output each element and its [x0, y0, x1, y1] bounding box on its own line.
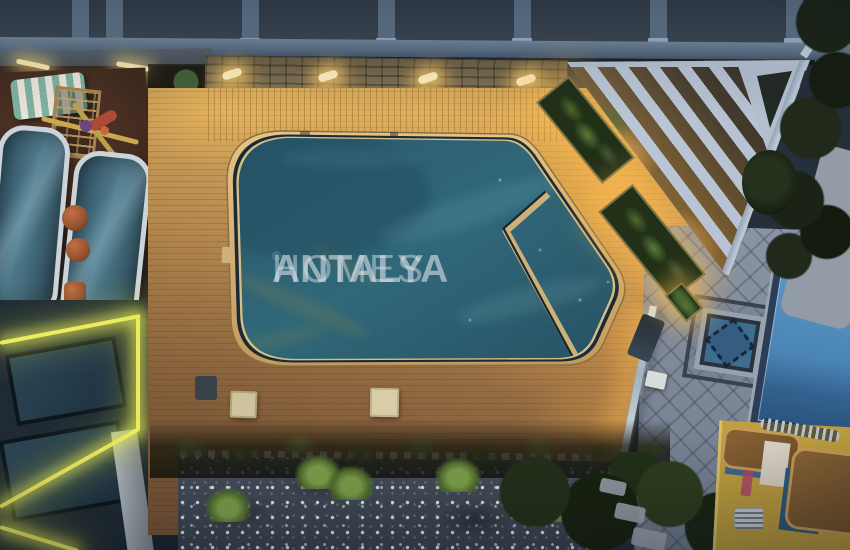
- grass-clump: [205, 488, 251, 522]
- watermark-brand-secondary: HOMES: [272, 250, 425, 289]
- grass-clump: [435, 458, 481, 492]
- deck-plank-texture: [208, 88, 564, 142]
- trees: [765, 0, 850, 285]
- deck-utility-hatch: [370, 388, 400, 418]
- ac-unit: [734, 508, 764, 530]
- tree: [742, 150, 797, 215]
- deck-equipment-box: [195, 376, 217, 400]
- skylight-window: [5, 336, 128, 426]
- aerial-photo-pool-complex: ANTALYAHOMES®: [0, 0, 850, 550]
- watermark-registered-icon: ®: [272, 250, 281, 262]
- deck-utility-hatch: [230, 391, 258, 419]
- led-strip-light: [136, 318, 140, 430]
- play-toy: [100, 126, 109, 135]
- play-toy: [80, 120, 92, 132]
- kids-pool-mosaic: [694, 307, 767, 378]
- brown-balcony-roof: [783, 446, 850, 540]
- terracotta-pot: [62, 205, 88, 231]
- grass-clump: [328, 466, 374, 500]
- terracotta-pot: [66, 238, 90, 262]
